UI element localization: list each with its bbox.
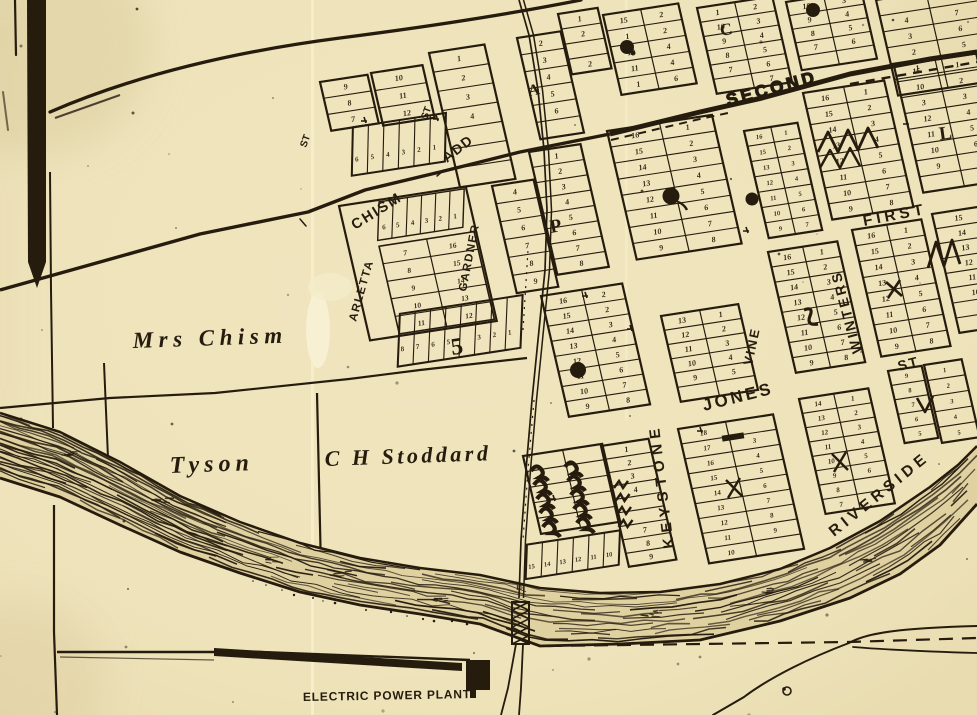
svg-text:10: 10 (971, 287, 977, 297)
svg-text:ELECTRIC POWER PLANT: ELECTRIC POWER PLANT (303, 687, 471, 704)
svg-text:Tyson: Tyson (169, 450, 254, 479)
